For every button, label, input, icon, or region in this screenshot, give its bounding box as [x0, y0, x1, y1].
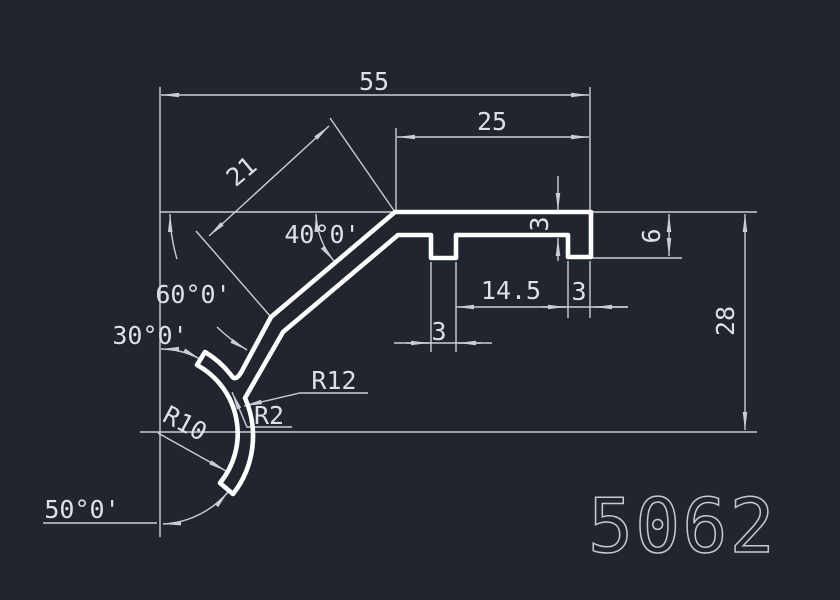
arc-30deg	[161, 349, 200, 359]
dim-fillet-radius: R2	[232, 392, 292, 430]
dim-label-14-5: 14.5	[481, 276, 541, 305]
dim-label-r12: R12	[311, 366, 356, 395]
dim-total-height: 28	[711, 214, 745, 430]
cad-viewport: 55 25 21 40°0' 60°0' 30°0' 50°0' R12	[0, 0, 840, 600]
dim-bottom-angle: 50°0'	[43, 492, 228, 524]
dim-label-55: 55	[359, 67, 389, 96]
part-number: 5062	[588, 482, 777, 570]
ext-21-upper	[330, 118, 395, 212]
cad-drawing: 55 25 21 40°0' 60°0' 30°0' 50°0' R12	[0, 0, 840, 600]
dim-label-leg-width: 3	[571, 277, 586, 306]
dim-groove-spacing: 14.5	[456, 276, 628, 307]
dim-rib-width: 3	[394, 317, 492, 346]
dim-label-21: 21	[221, 151, 263, 193]
dim-label-28: 28	[711, 306, 740, 336]
dim-label-flange-thickness: 3	[525, 216, 554, 231]
dim-flange-thickness: 3	[525, 176, 558, 261]
arc-60deg-upper	[170, 214, 177, 259]
arc-60deg-lower	[217, 327, 247, 350]
arc-50deg	[163, 492, 228, 524]
dim-hook-angle: 30°0'	[112, 321, 200, 359]
extension-lines	[140, 87, 757, 537]
profile-outline	[197, 212, 591, 494]
dim-label-60deg: 60°0'	[155, 280, 230, 309]
dim-label-50deg: 50°0'	[44, 495, 119, 524]
dim-label-r2: R2	[254, 401, 284, 430]
dim-label-25: 25	[477, 107, 507, 136]
dim-label-40deg: 40°0'	[284, 220, 359, 249]
dim-inner-radius: R10	[158, 400, 226, 471]
dim-label-30deg: 30°0'	[112, 321, 187, 350]
dim-label-6: 6	[637, 228, 666, 243]
dim-label-r10: R10	[158, 400, 211, 447]
dim-total-width: 55	[161, 67, 589, 96]
dim-leg-height: 6	[637, 214, 669, 256]
dim-top-right-width: 25	[397, 107, 589, 137]
dim-label-rib-width: 3	[431, 317, 446, 346]
dim-leg-width: 3	[571, 277, 628, 307]
